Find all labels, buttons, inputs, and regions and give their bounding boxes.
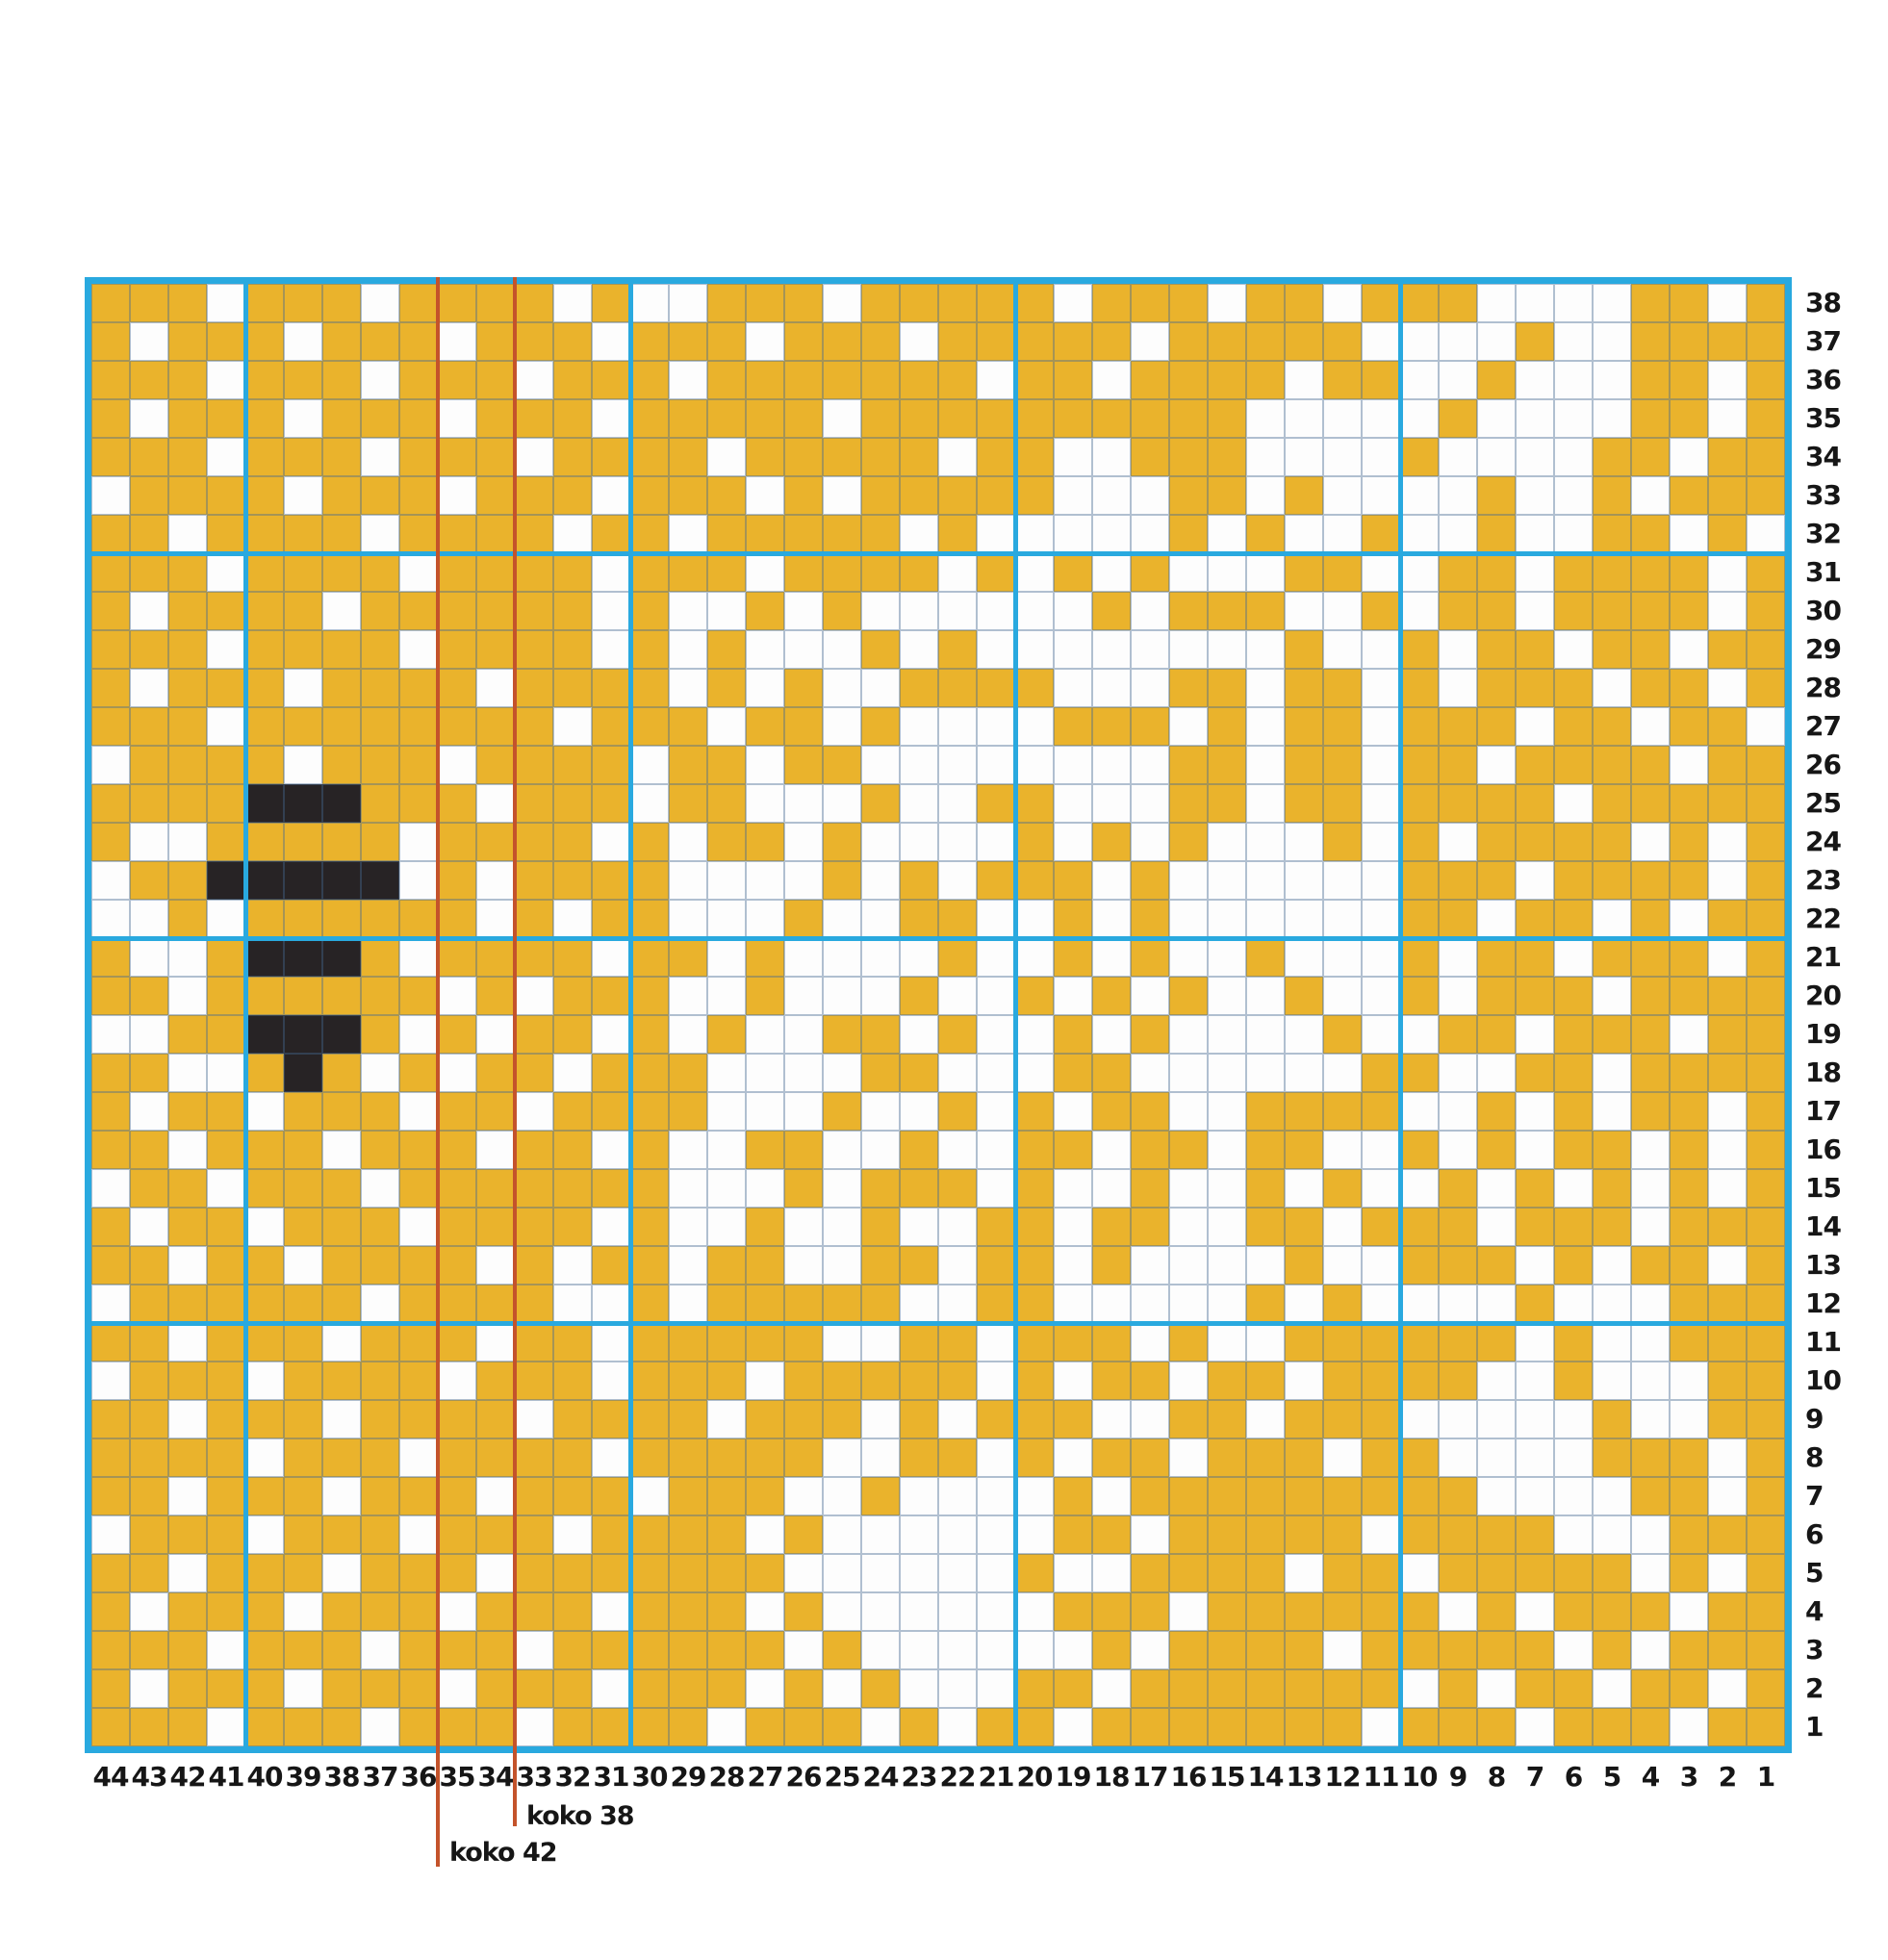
grid-cell	[746, 553, 784, 592]
grid-cell	[1285, 1054, 1323, 1092]
grid-cell	[1131, 669, 1169, 707]
grid-cell	[1285, 592, 1323, 630]
grid-cell	[207, 1554, 245, 1592]
grid-cell	[1092, 284, 1131, 322]
grid-cell	[245, 399, 284, 438]
grid-cell	[1131, 476, 1169, 515]
col-label-27: 27	[748, 1764, 783, 1791]
grid-cell	[1439, 592, 1477, 630]
grid-cell	[207, 1669, 245, 1708]
col-label-13: 13	[1287, 1764, 1322, 1791]
grid-cell	[1439, 1669, 1477, 1708]
grid-cell	[1593, 1362, 1631, 1400]
grid-cell	[322, 977, 361, 1015]
grid-cell	[361, 1438, 399, 1477]
grid-cell	[322, 1285, 361, 1323]
grid-cell	[1169, 1515, 1208, 1554]
grid-cell	[1747, 746, 1785, 784]
grid-cell	[361, 476, 399, 515]
grid-cell	[361, 938, 399, 977]
grid-cell	[1246, 515, 1285, 553]
grid-cell	[900, 322, 938, 361]
grid-cell	[1092, 900, 1131, 938]
grid-cell	[1015, 1631, 1054, 1669]
grid-cell	[1708, 630, 1747, 669]
grid-cell	[1516, 900, 1554, 938]
grid-cell	[861, 399, 900, 438]
grid-cell	[207, 900, 245, 938]
grid-cell	[207, 322, 245, 361]
grid-cell	[284, 1554, 322, 1592]
grid-cell	[476, 746, 515, 784]
col-label-28: 28	[709, 1764, 745, 1791]
grid-cell	[207, 1438, 245, 1477]
col-label-37: 37	[363, 1764, 398, 1791]
grid-cell	[1323, 322, 1362, 361]
grid-cell	[900, 1169, 938, 1208]
col-label-43: 43	[132, 1764, 167, 1791]
grid-cell	[938, 1054, 977, 1092]
row-label-13: 13	[1805, 1252, 1841, 1279]
grid-cell	[938, 361, 977, 399]
grid-cell	[245, 1246, 284, 1285]
grid-cell	[438, 861, 476, 900]
grid-cell	[1554, 515, 1593, 553]
grid-cell	[746, 1131, 784, 1169]
grid-cell	[1400, 938, 1439, 977]
grid-cell	[322, 1323, 361, 1362]
grid-cell	[399, 630, 438, 669]
grid-cell	[1015, 399, 1054, 438]
grid-cell	[1208, 746, 1246, 784]
grid-cell	[1400, 746, 1439, 784]
grid-cell	[1362, 938, 1400, 977]
grid-cell	[592, 1054, 630, 1092]
grid-cell	[1747, 707, 1785, 746]
grid-cell	[1516, 322, 1554, 361]
grid-cell	[245, 1362, 284, 1400]
col-label-35: 35	[440, 1764, 475, 1791]
grid-cell	[1400, 1592, 1439, 1631]
grid-cell	[1054, 630, 1092, 669]
grid-cell	[1593, 322, 1631, 361]
grid-cell	[1169, 515, 1208, 553]
row-label-17: 17	[1805, 1098, 1841, 1125]
grid-cell	[399, 823, 438, 861]
grid-cell	[1169, 1323, 1208, 1362]
grid-cell	[515, 1669, 553, 1708]
grid-cell	[361, 1554, 399, 1592]
grid-cell	[1131, 1362, 1169, 1400]
grid-cell	[1516, 1246, 1554, 1285]
grid-cell	[1747, 1515, 1785, 1554]
grid-cell	[1477, 1631, 1516, 1669]
grid-cell	[977, 823, 1015, 861]
row-label-16: 16	[1805, 1136, 1841, 1163]
grid-cell	[1631, 1131, 1670, 1169]
grid-cell	[399, 1169, 438, 1208]
grid-cell	[91, 746, 130, 784]
grid-cell	[1747, 515, 1785, 553]
grid-cell	[784, 1400, 823, 1438]
grid-cell	[1439, 1438, 1477, 1477]
grid-cell	[1246, 707, 1285, 746]
grid-cell	[1477, 669, 1516, 707]
grid-cell	[1516, 476, 1554, 515]
grid-cell	[245, 938, 284, 977]
grid-cell	[476, 284, 515, 322]
grid-cell	[784, 669, 823, 707]
grid-cell	[669, 630, 707, 669]
grid-cell	[977, 1169, 1015, 1208]
grid-cell	[515, 977, 553, 1015]
grid-cell	[322, 1708, 361, 1746]
grid-cell	[130, 746, 168, 784]
grid-cell	[977, 977, 1015, 1015]
col-label-40: 40	[247, 1764, 283, 1791]
grid-cell	[1092, 361, 1131, 399]
grid-cell	[1477, 592, 1516, 630]
grid-cell	[1323, 1362, 1362, 1400]
grid-cell	[707, 1515, 746, 1554]
grid-cell	[399, 746, 438, 784]
grid-cell	[861, 938, 900, 977]
grid-cell	[669, 361, 707, 399]
grid-cell	[900, 938, 938, 977]
grid-cell	[1400, 1169, 1439, 1208]
grid-cell	[1362, 1208, 1400, 1246]
grid-cell	[707, 1554, 746, 1592]
grid-cell	[438, 938, 476, 977]
grid-cell	[1246, 630, 1285, 669]
grid-cell	[91, 1208, 130, 1246]
grid-cell	[361, 284, 399, 322]
grid-cell	[1323, 784, 1362, 823]
grid-cell	[553, 553, 592, 592]
grid-cell	[1593, 515, 1631, 553]
grid-cell	[938, 1285, 977, 1323]
grid-cell	[669, 1169, 707, 1208]
grid-cell	[1593, 1092, 1631, 1131]
grid-cell	[823, 938, 861, 977]
grid-cell	[1285, 1092, 1323, 1131]
grid-cell	[1285, 630, 1323, 669]
grid-cell	[91, 1515, 130, 1554]
grid-cell	[553, 1092, 592, 1131]
grid-cell	[284, 784, 322, 823]
grid-cell	[900, 476, 938, 515]
section-line-vertical	[628, 284, 633, 1746]
grid-cell	[515, 669, 553, 707]
col-label-2: 2	[1719, 1764, 1736, 1791]
grid-cell	[900, 900, 938, 938]
grid-cell	[861, 900, 900, 938]
grid-cell	[91, 938, 130, 977]
grid-cell	[476, 515, 515, 553]
col-label-10: 10	[1402, 1764, 1438, 1791]
grid-cell	[1131, 1669, 1169, 1708]
grid-cell	[707, 515, 746, 553]
grid-cell	[1246, 1285, 1285, 1323]
grid-cell	[784, 515, 823, 553]
grid-cell	[784, 630, 823, 669]
grid-cell	[1208, 1131, 1246, 1169]
grid-cell	[938, 823, 977, 861]
col-label-12: 12	[1325, 1764, 1361, 1791]
grid-cell	[1323, 592, 1362, 630]
grid-cell	[1362, 746, 1400, 784]
grid-cell	[630, 284, 669, 322]
grid-cell	[1631, 707, 1670, 746]
grid-cell	[1708, 1092, 1747, 1131]
grid-cell	[1516, 515, 1554, 553]
grid-cell	[476, 1669, 515, 1708]
grid-cell	[322, 630, 361, 669]
grid-cell	[630, 1054, 669, 1092]
grid-cell	[1747, 1054, 1785, 1092]
grid-cell	[245, 284, 284, 322]
grid-cell	[630, 861, 669, 900]
grid-cell	[823, 1246, 861, 1285]
grid-cell	[515, 823, 553, 861]
grid-cell	[515, 515, 553, 553]
grid-cell	[1323, 1669, 1362, 1708]
grid-cell	[900, 438, 938, 476]
section-line-horizontal	[91, 936, 1785, 941]
grid-cell	[322, 515, 361, 553]
grid-cell	[1323, 746, 1362, 784]
grid-cell	[91, 1362, 130, 1400]
grid-cell	[1169, 823, 1208, 861]
grid-cell	[669, 1592, 707, 1631]
row-label-5: 5	[1805, 1560, 1823, 1587]
grid-cell	[1208, 900, 1246, 938]
grid-cell	[284, 284, 322, 322]
grid-cell	[476, 1169, 515, 1208]
grid-cell	[1323, 977, 1362, 1015]
grid-cell	[1054, 1669, 1092, 1708]
grid-cell	[1131, 1438, 1169, 1477]
grid-cell	[1708, 1477, 1747, 1515]
grid-cell	[553, 1323, 592, 1362]
grid-cell	[1400, 592, 1439, 630]
grid-cell	[1631, 861, 1670, 900]
grid-cell	[515, 592, 553, 630]
grid-cell	[1400, 1246, 1439, 1285]
grid-cell	[1362, 1323, 1400, 1362]
grid-cell	[861, 861, 900, 900]
grid-cell	[476, 823, 515, 861]
grid-cell	[1477, 1169, 1516, 1208]
grid-cell	[1169, 1246, 1208, 1285]
grid-cell	[91, 1131, 130, 1169]
grid-cell	[746, 900, 784, 938]
grid-cell	[1439, 1400, 1477, 1438]
grid-cell	[207, 476, 245, 515]
row-label-2: 2	[1805, 1675, 1823, 1702]
grid-cell	[1208, 1015, 1246, 1054]
grid-cell	[553, 1477, 592, 1515]
grid-cell	[592, 1477, 630, 1515]
grid-cell	[630, 553, 669, 592]
grid-cell	[1092, 399, 1131, 438]
grid-cell	[1400, 1323, 1439, 1362]
grid-cell	[207, 746, 245, 784]
grid-cell	[1670, 1323, 1708, 1362]
grid-cell	[1054, 361, 1092, 399]
grid-cell	[1400, 515, 1439, 553]
grid-cell	[1554, 1208, 1593, 1246]
grid-cell	[130, 1477, 168, 1515]
grid-cell	[1246, 977, 1285, 1015]
grid-cell	[1477, 1362, 1516, 1400]
grid-cell	[784, 977, 823, 1015]
grid-cell	[168, 1362, 207, 1400]
grid-cell	[1131, 861, 1169, 900]
grid-cell	[130, 1631, 168, 1669]
grid-cell	[1054, 1169, 1092, 1208]
grid-cell	[1477, 1131, 1516, 1169]
grid-cell	[784, 1323, 823, 1362]
grid-cell	[168, 1631, 207, 1669]
grid-cell	[592, 1246, 630, 1285]
grid-cell	[1708, 438, 1747, 476]
grid-cell	[553, 438, 592, 476]
grid-cell	[630, 1323, 669, 1362]
grid-cell	[245, 669, 284, 707]
grid-cell	[1631, 1438, 1670, 1477]
grid-cell	[1054, 592, 1092, 630]
grid-cell	[1323, 1169, 1362, 1208]
grid-cell	[1169, 592, 1208, 630]
grid-cell	[1131, 1015, 1169, 1054]
grid-cell	[130, 1208, 168, 1246]
grid-cell	[823, 515, 861, 553]
grid-cell	[207, 284, 245, 322]
grid-cell	[1131, 1554, 1169, 1592]
grid-cell	[1670, 1208, 1708, 1246]
grid-cell	[1708, 938, 1747, 977]
grid-cell	[1631, 1554, 1670, 1592]
grid-cell	[784, 476, 823, 515]
grid-cell	[669, 592, 707, 630]
grid-cell	[245, 900, 284, 938]
grid-cell	[1054, 1015, 1092, 1054]
grid-cell	[1554, 861, 1593, 900]
grid-cell	[938, 900, 977, 938]
grid-cell	[1593, 746, 1631, 784]
grid-cell	[91, 1554, 130, 1592]
grid-cell	[1670, 1477, 1708, 1515]
col-label-17: 17	[1133, 1764, 1168, 1791]
grid-cell	[784, 1285, 823, 1323]
grid-cell	[861, 438, 900, 476]
grid-cell	[1477, 361, 1516, 399]
grid-cell	[861, 630, 900, 669]
grid-cell	[91, 861, 130, 900]
grid-cell	[1169, 322, 1208, 361]
grid-cell	[130, 1708, 168, 1746]
row-label-10: 10	[1805, 1367, 1841, 1394]
grid-cell	[1631, 977, 1670, 1015]
grid-cell	[784, 322, 823, 361]
grid-cell	[1516, 1131, 1554, 1169]
grid-cell	[823, 1708, 861, 1746]
row-label-34: 34	[1805, 444, 1841, 471]
grid-cell	[1554, 630, 1593, 669]
grid-cell	[1400, 399, 1439, 438]
grid-cell	[438, 1323, 476, 1362]
grid-cell	[245, 322, 284, 361]
grid-cell	[1631, 938, 1670, 977]
grid-cell	[1631, 553, 1670, 592]
grid-cell	[322, 399, 361, 438]
grid-cell	[1477, 784, 1516, 823]
grid-cell	[91, 630, 130, 669]
grid-cell	[1285, 900, 1323, 938]
grid-cell	[361, 1323, 399, 1362]
grid-cell	[746, 1477, 784, 1515]
grid-cell	[1131, 1131, 1169, 1169]
grid-cell	[1554, 361, 1593, 399]
grid-cell	[1323, 1285, 1362, 1323]
grid-cell	[1323, 861, 1362, 900]
col-label-39: 39	[286, 1764, 321, 1791]
grid-cell	[784, 938, 823, 977]
grid-cell	[399, 1669, 438, 1708]
grid-cell	[1169, 746, 1208, 784]
grid-cell	[1246, 1323, 1285, 1362]
grid-cell	[861, 1092, 900, 1131]
grid-cell	[823, 784, 861, 823]
grid-cell	[1670, 438, 1708, 476]
row-label-33: 33	[1805, 482, 1841, 509]
grid-cell	[1516, 1208, 1554, 1246]
grid-cell	[361, 322, 399, 361]
grid-cell	[322, 476, 361, 515]
grid-cell	[1246, 1477, 1285, 1515]
grid-cell	[1092, 746, 1131, 784]
grid-cell	[1208, 1323, 1246, 1362]
grid-cell	[1208, 977, 1246, 1015]
grid-cell	[1593, 1246, 1631, 1285]
grid-cell	[900, 1515, 938, 1554]
grid-cell	[322, 746, 361, 784]
grid-cell	[553, 900, 592, 938]
grid-cell	[322, 707, 361, 746]
grid-cell	[1092, 1054, 1131, 1092]
grid-cell	[130, 1092, 168, 1131]
grid-cell	[1285, 1362, 1323, 1400]
grid-cell	[1747, 592, 1785, 630]
col-label-34: 34	[478, 1764, 514, 1791]
grid-cell	[1323, 553, 1362, 592]
grid-cell	[977, 1092, 1015, 1131]
grid-cell	[322, 322, 361, 361]
grid-cell	[1323, 361, 1362, 399]
col-label-11: 11	[1364, 1764, 1399, 1791]
grid-cell	[1131, 900, 1169, 938]
grid-cell	[861, 553, 900, 592]
grid-cell	[399, 1092, 438, 1131]
grid-cell	[1554, 1362, 1593, 1400]
grid-cell	[438, 399, 476, 438]
grid-cell	[245, 438, 284, 476]
grid-cell	[168, 1438, 207, 1477]
grid-cell	[1246, 938, 1285, 977]
grid-cell	[1285, 322, 1323, 361]
grid-cell	[1631, 361, 1670, 399]
